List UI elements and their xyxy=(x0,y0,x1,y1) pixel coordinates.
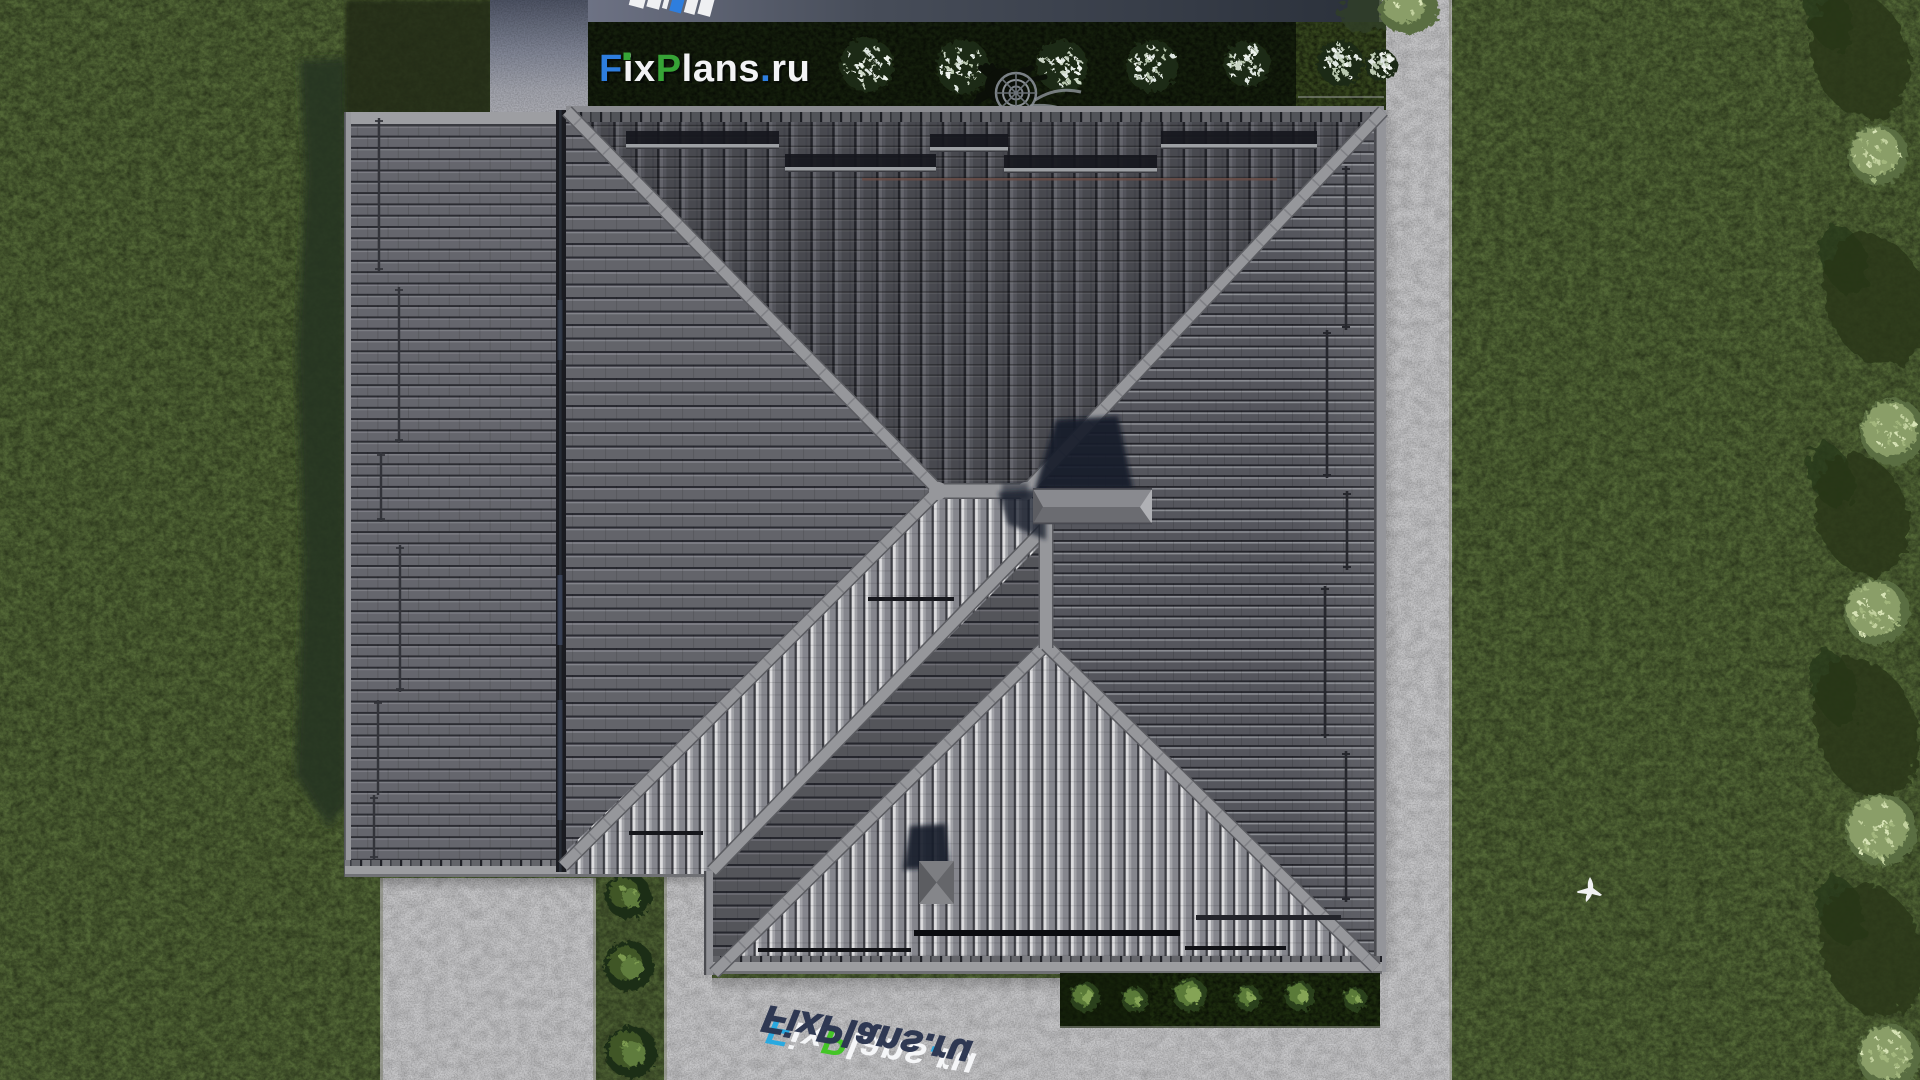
svg-text:FixPlans.ru: FixPlans.ru xyxy=(599,48,810,90)
